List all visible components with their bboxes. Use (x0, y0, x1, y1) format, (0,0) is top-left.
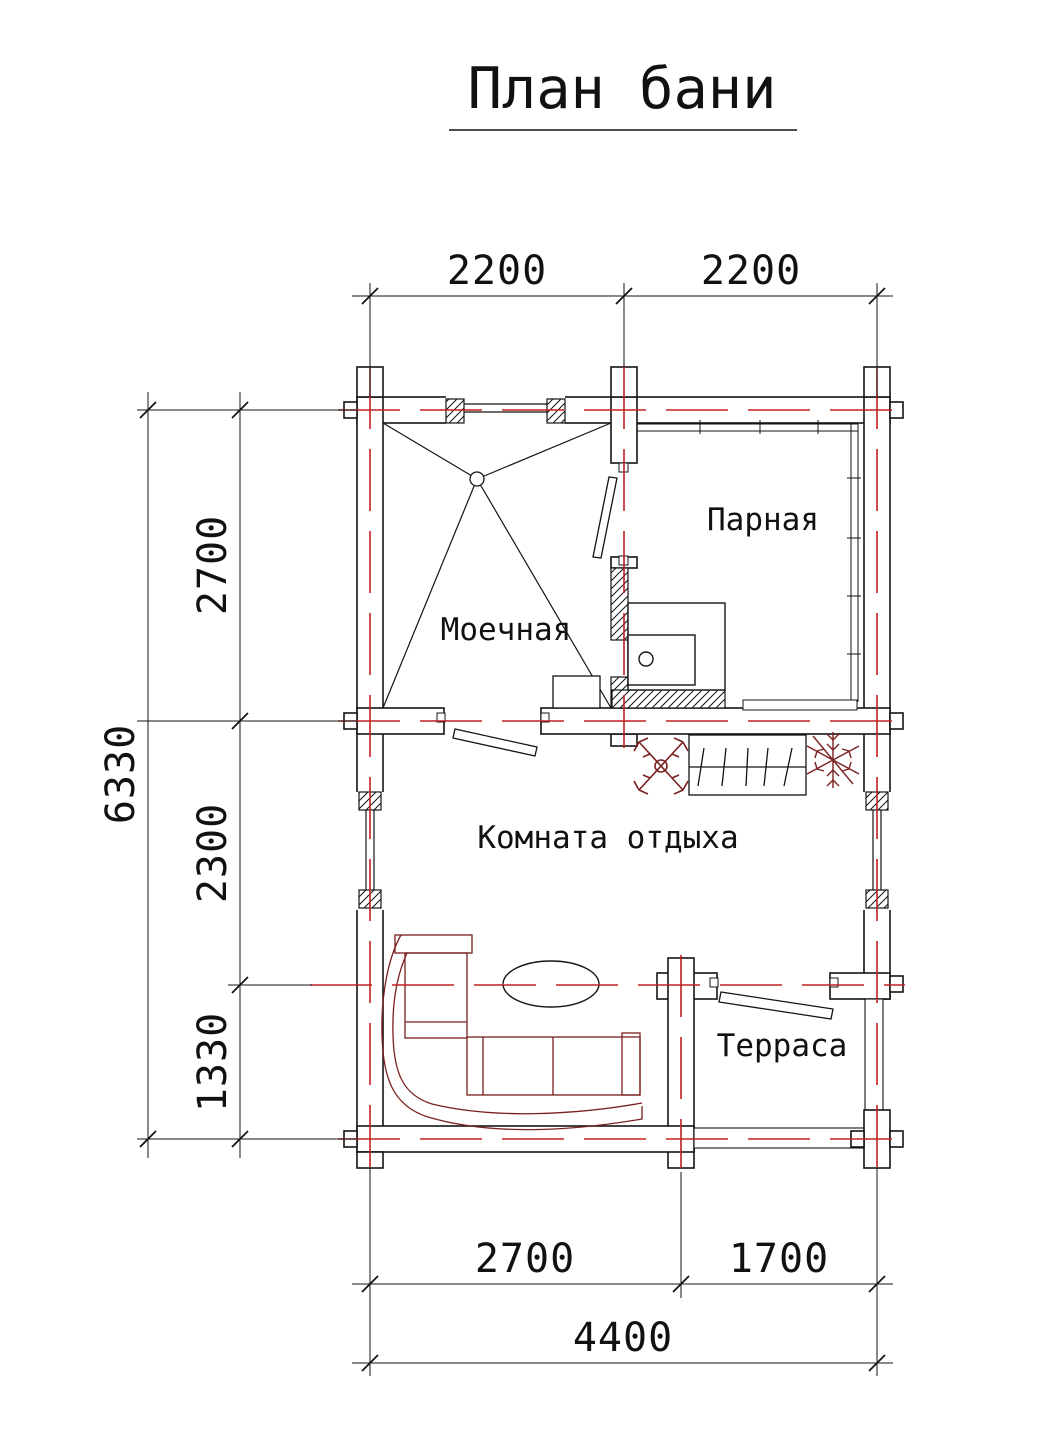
stove (612, 603, 725, 708)
page-title: План бани (468, 56, 777, 122)
floor-plan-drawing: 2200 2200 2700 2300 1330 6330 (0, 0, 1062, 1454)
room-label-rest-room: Комната отдыха (477, 820, 738, 856)
dim-top-right: 2200 (701, 248, 801, 294)
dim-left-total: 6330 (98, 724, 144, 824)
dim-bottom-1700: 1700 (729, 1236, 829, 1282)
room-label-terrace: Терраса (717, 1028, 848, 1064)
dim-bottom-2700: 2700 (475, 1236, 575, 1282)
oval-table (503, 961, 599, 1007)
floor-drain-icon (470, 472, 484, 486)
washroom-step (553, 676, 600, 708)
dim-left-2700: 2700 (190, 515, 236, 615)
dim-top-left: 2200 (447, 248, 547, 294)
room-label-steam-room: Парная (707, 502, 819, 538)
dim-bottom-total: 4400 (573, 1315, 673, 1361)
hatched-fire-wall (611, 568, 628, 708)
dim-left-2300: 2300 (190, 803, 236, 903)
stove-door-icon (639, 652, 653, 666)
floor-plan-page: 2200 2200 2700 2300 1330 6330 (0, 0, 1062, 1454)
room-label-washroom: Моечная (441, 612, 572, 648)
dim-left-1330: 1330 (190, 1012, 236, 1112)
